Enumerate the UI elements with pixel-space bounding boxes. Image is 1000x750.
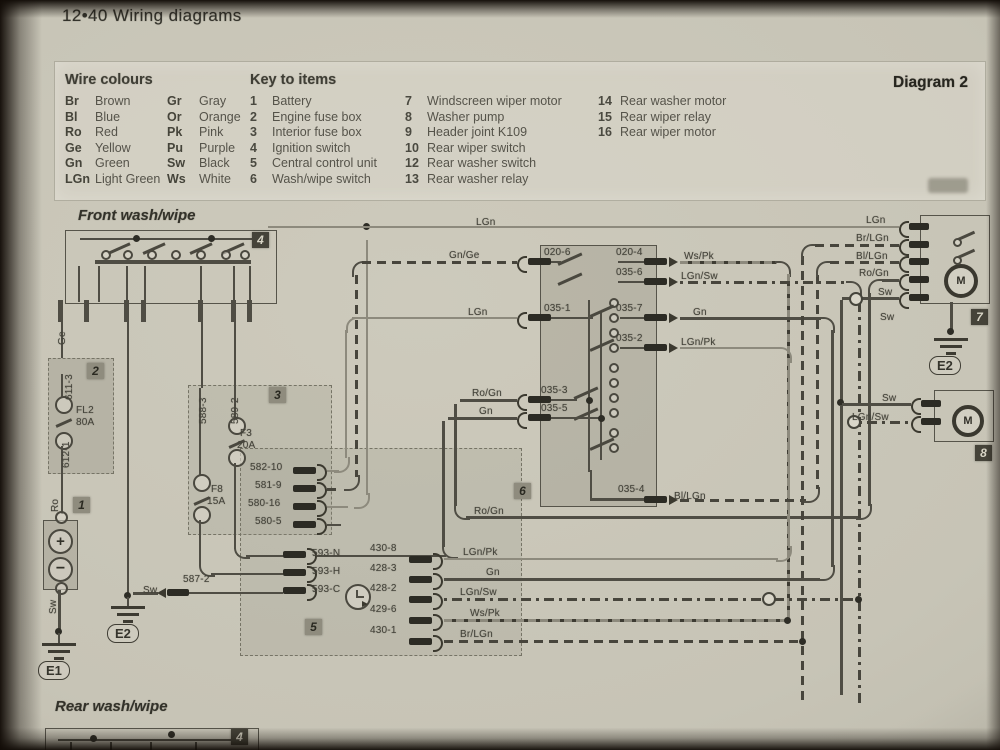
wire-label: 15A <box>207 496 225 507</box>
ground-symbol <box>117 613 139 616</box>
key-item-number: 10 <box>405 141 427 155</box>
wire-label: LGn/Pk <box>463 547 498 558</box>
wire-label: LGn/Pk <box>681 337 716 348</box>
key-item-number: 7 <box>405 94 427 108</box>
wire-segment <box>366 240 368 495</box>
rear-diagram-title: Rear wash/wipe <box>55 698 168 715</box>
connector-035-1 <box>528 314 551 321</box>
wire-gn-ge <box>362 261 517 264</box>
wire-row-lgn-pk <box>444 558 778 560</box>
ground-stem <box>127 597 129 606</box>
header-joint-marker <box>849 292 863 306</box>
wire-label: 430-8 <box>370 543 397 554</box>
wire-label: 588-3 <box>198 397 209 424</box>
junction-dot <box>208 235 215 242</box>
contact-circle <box>609 378 619 388</box>
junction-dot <box>855 596 862 603</box>
connector-430-1 <box>409 638 432 645</box>
connector-020-6 <box>528 258 551 265</box>
contact-circle <box>101 250 111 260</box>
wire-lgn-sw-v <box>858 294 861 706</box>
wire-segment <box>195 742 197 750</box>
wire-colour-code: Pk <box>167 125 199 141</box>
wire-label: 612-1 <box>61 441 72 468</box>
connector-pump <box>921 418 941 425</box>
wire-segment <box>80 238 262 240</box>
wire-label: LGn/Sw <box>460 587 497 598</box>
wire-label: F3 <box>240 428 252 439</box>
wire-segment <box>442 421 445 547</box>
wire-label: 589-2 <box>230 397 241 424</box>
wire-label: Sw <box>48 600 59 614</box>
terminal-stub <box>84 300 89 322</box>
wire-label: 587-2 <box>183 574 210 585</box>
wire-label: 430-1 <box>370 625 397 636</box>
key-item-label: Washer pump <box>427 110 504 124</box>
wire-label: 580-5 <box>255 516 282 527</box>
wire-corner <box>346 317 362 333</box>
wire-label: 429-6 <box>370 604 397 615</box>
ignition-switch-box <box>65 230 277 304</box>
key-item: 1Battery <box>250 94 405 110</box>
wire-row-lgn-sw <box>444 598 859 601</box>
connector-582-10 <box>293 467 316 474</box>
key-item-number: 15 <box>598 110 620 124</box>
wire-label: Sw <box>882 393 896 404</box>
wire-sw-v <box>840 300 843 400</box>
wire-lgn-pk-v <box>788 360 790 548</box>
wire-label: Br/LGn <box>460 629 493 640</box>
wire-colour-code: LGn <box>65 172 95 188</box>
wire-colour-name: Brown <box>95 94 167 110</box>
key-item: 8Washer pump <box>405 110 598 126</box>
wire-colour-code: Bl <box>65 110 95 126</box>
ground-symbol <box>111 606 145 609</box>
wire-label: Bl/LGn <box>856 251 888 262</box>
wire-label: LGn <box>866 215 886 226</box>
key-to-items-list: 1Battery2Engine fuse box3Interior fuse b… <box>250 94 726 187</box>
wire-label: 020-6 <box>544 247 571 258</box>
wire-label: LGn/Sw <box>681 271 718 282</box>
wire-row-br-lgn <box>444 640 803 643</box>
ground-symbol <box>54 657 64 660</box>
contact-circle <box>609 428 619 438</box>
manual-page-photo: 12•40 Wiring diagrams Wire colours BrBro… <box>0 0 1000 750</box>
wire-ro-gn-in <box>460 399 517 402</box>
wire-label: 20A <box>237 440 255 451</box>
wire-label: 035-7 <box>616 303 643 314</box>
wire-segment <box>61 374 63 398</box>
terminal-stub <box>141 300 146 322</box>
wire-segment <box>70 742 72 750</box>
wire-segment <box>551 261 561 263</box>
wire-label: Br/LGn <box>856 233 889 244</box>
wire-segment <box>95 260 251 264</box>
connector-593-N <box>283 551 306 558</box>
wire-segment <box>200 266 202 302</box>
wire-segment <box>150 742 152 750</box>
wire-colour-code: Ge <box>65 141 95 157</box>
wire-segment <box>234 463 236 549</box>
wire-label: Gn <box>486 567 500 578</box>
wire-segment <box>355 275 358 477</box>
component-tag: 4 <box>252 232 269 248</box>
wire-label: 035-1 <box>544 303 571 314</box>
diagram-number: Diagram 2 <box>893 74 968 92</box>
key-item-number: 1 <box>250 94 272 108</box>
clock-hand <box>357 596 364 598</box>
key-items-column: 14Rear washer motor15Rear wiper relay16R… <box>598 94 726 187</box>
connector-428-2 <box>409 596 432 603</box>
wire-ro-gn-v <box>868 293 871 506</box>
wire-colour-name: Blue <box>95 110 167 126</box>
wire-segment <box>98 266 100 302</box>
contact-circle <box>147 250 157 260</box>
wire-label: 428-3 <box>370 563 397 574</box>
wire-sw-pump <box>842 403 911 406</box>
terminal-stub <box>198 300 203 322</box>
key-item: 7Windscreen wiper motor <box>405 94 598 110</box>
wire-segment <box>327 488 338 491</box>
ground-label: E2 <box>107 624 139 643</box>
connector-motor <box>909 223 929 230</box>
wire-sw-down <box>840 405 843 695</box>
junction-dot <box>586 397 593 404</box>
legend-panel: Wire colours BrBrownGrGrayBlBlueOrOrange… <box>55 62 985 200</box>
wire-colour-code: Ws <box>167 172 199 188</box>
connector-arrow <box>669 277 678 287</box>
wire-segment <box>201 322 203 388</box>
junction-dot <box>90 735 97 742</box>
wire-label: Sw <box>878 287 892 298</box>
key-item-number: 12 <box>405 156 427 170</box>
ground-symbol <box>934 338 968 341</box>
key-item-label: Header joint K109 <box>427 125 527 139</box>
connector-580-5 <box>293 521 316 528</box>
clock-arrow <box>362 601 368 607</box>
component-tag: 6 <box>514 483 531 499</box>
contact-circle <box>609 408 619 418</box>
key-item-label: Central control unit <box>272 156 377 170</box>
contact-circle <box>609 343 619 353</box>
wire-segment <box>61 472 63 514</box>
wire-label: 035-5 <box>541 403 568 414</box>
wire-colour-name: Light Green <box>95 172 167 188</box>
wire-segment <box>345 330 347 458</box>
junction-dot <box>168 731 175 738</box>
key-items-column: 7Windscreen wiper motor8Washer pump9Head… <box>405 94 598 187</box>
wire-segment <box>551 317 593 319</box>
wire-label: 593-H <box>312 566 340 577</box>
connector-cup <box>911 398 921 415</box>
ground-stem <box>58 633 60 643</box>
wire-gn-in <box>448 417 517 420</box>
connector-cup <box>517 412 527 429</box>
wire-label: Ro/Gn <box>472 388 502 399</box>
wire-label: 580-16 <box>248 498 280 509</box>
key-item-label: Rear wiper relay <box>620 110 711 124</box>
wire-label: 593-N <box>312 548 340 559</box>
ground-symbol <box>123 620 133 623</box>
wire-segment <box>551 417 603 419</box>
connector-cup <box>899 256 909 273</box>
key-item-label: Rear washer relay <box>427 172 528 186</box>
wire-segment <box>590 470 592 498</box>
wire-label: 428-2 <box>370 583 397 594</box>
wire-label: 020-4 <box>616 247 643 258</box>
component-tag: 3 <box>269 387 286 403</box>
connector-428-3 <box>409 576 432 583</box>
fuse-terminal <box>193 474 211 492</box>
wire-colour-name: Yellow <box>95 141 167 157</box>
key-item-label: Wash/wipe switch <box>272 172 371 186</box>
wire-lgn-top <box>268 226 899 228</box>
contact-circle <box>196 250 206 260</box>
wire-segment <box>110 742 112 750</box>
ground-symbol <box>42 643 76 646</box>
front-diagram-title: Front wash/wipe <box>78 207 196 224</box>
key-item: 13Rear washer relay <box>405 172 598 188</box>
key-item-label: Engine fuse box <box>272 110 362 124</box>
wire-label: 035-3 <box>541 385 568 396</box>
connector-cup <box>517 312 527 329</box>
ground-label: E1 <box>38 661 70 680</box>
wire-label: 035-6 <box>616 267 643 278</box>
connector-035-7 <box>644 314 667 321</box>
wire-row-gn <box>444 578 820 581</box>
wire-corner <box>804 487 820 503</box>
key-item-number: 3 <box>250 125 272 139</box>
key-item: 14Rear washer motor <box>598 94 726 110</box>
connector-arrow <box>669 257 678 267</box>
contact-circle <box>240 250 250 260</box>
connector-cup <box>899 221 909 238</box>
connector-587-2 <box>167 589 189 596</box>
wire-gn-v <box>831 330 834 567</box>
wire-label: LGn <box>468 307 488 318</box>
key-items-column: 1Battery2Engine fuse box3Interior fuse b… <box>250 94 405 187</box>
key-item-number: 9 <box>405 125 427 139</box>
key-item-label: Windscreen wiper motor <box>427 94 562 108</box>
key-item-label: Rear wiper motor <box>620 125 716 139</box>
key-item-label: Interior fuse box <box>272 125 362 139</box>
wire-colours-title: Wire colours <box>65 72 153 88</box>
battery-plus: + <box>48 529 73 554</box>
terminal-stub <box>231 300 236 322</box>
ground-symbol <box>946 352 956 355</box>
wire-segment <box>620 317 644 319</box>
component-tag: 4 <box>231 729 248 745</box>
wire-corner <box>776 546 792 562</box>
wire-label: Gn/Ge <box>449 250 479 261</box>
wire-label: Ws/Pk <box>470 608 500 619</box>
key-item: 2Engine fuse box <box>250 110 405 126</box>
component-tag: 7 <box>971 309 988 325</box>
page-header: 12•40 Wiring diagrams <box>62 6 242 26</box>
connector-arrow <box>157 588 166 598</box>
wire-segment <box>327 524 341 526</box>
key-item-label: Rear wiper switch <box>427 141 526 155</box>
wire-label: 582-10 <box>250 462 282 473</box>
connector-motor <box>909 294 929 301</box>
connector-cup <box>517 256 527 273</box>
connector-pump <box>921 400 941 407</box>
wire-segment <box>144 266 146 302</box>
wire-label: 593-C <box>312 584 340 595</box>
contact-circle <box>171 250 181 260</box>
connector-cup <box>899 239 909 256</box>
wire-lgn-mid <box>352 317 517 319</box>
connector-cup <box>517 394 527 411</box>
connector-motor <box>909 241 929 248</box>
key-item: 6Wash/wipe switch <box>250 172 405 188</box>
ground-symbol <box>48 650 70 653</box>
key-item-number: 16 <box>598 125 620 139</box>
component-tag: 2 <box>87 363 104 379</box>
connector-580-16 <box>293 503 316 510</box>
junction-dot <box>799 638 806 645</box>
key-item-number: 2 <box>250 110 272 124</box>
wire-label: Sw <box>880 312 894 323</box>
wire-colour-code: Gn <box>65 156 95 172</box>
contact-circle <box>609 443 619 453</box>
motor-icon: M <box>952 405 984 437</box>
wire-label: Bl/LGn <box>674 491 706 502</box>
wire-label: Sw <box>143 585 157 596</box>
paper-page: 12•40 Wiring diagrams Wire colours BrBro… <box>0 0 1000 750</box>
wire-segment <box>618 261 644 263</box>
ground-symbol <box>940 345 962 348</box>
header-joint-marker <box>762 592 776 606</box>
wire-colour-name: Red <box>95 125 167 141</box>
junction-dot <box>784 617 791 624</box>
component-tag: 8 <box>975 445 992 461</box>
wire-br-lgn-motor <box>815 244 899 247</box>
connector-035-5 <box>528 414 551 421</box>
print-code-smudge <box>928 178 968 193</box>
wire-label: Ro/Gn <box>859 268 889 279</box>
connector-cup <box>899 292 909 309</box>
connector-motor <box>909 276 929 283</box>
connector-430-8 <box>409 556 432 563</box>
wire-colour-code: Gr <box>167 94 199 110</box>
switch-ladder <box>600 312 602 460</box>
wire-colour-code: Ro <box>65 125 95 141</box>
contact-circle <box>123 250 133 260</box>
fuse-terminal <box>193 506 211 524</box>
wire-colours-list: BrBrownGrGrayBlBlueOrOrangeRoRedPkPinkGe… <box>65 94 279 187</box>
wire-label: Ro/Gn <box>474 506 504 517</box>
wire-segment <box>327 506 348 508</box>
wire-corner <box>819 565 835 581</box>
wire-colour-code: Sw <box>167 156 199 172</box>
key-item: 4Ignition switch <box>250 141 405 157</box>
wire-label: FL2 <box>76 405 94 416</box>
contact-circle <box>953 256 962 265</box>
connector-020-4 <box>644 258 667 265</box>
wire-label: Gn <box>479 406 493 417</box>
wire-label: 611-3 <box>64 374 75 400</box>
junction-dot <box>133 235 140 242</box>
wire-segment <box>551 399 577 401</box>
contact-circle <box>953 238 962 247</box>
contact-circle <box>609 313 619 323</box>
connector-035-2 <box>644 344 667 351</box>
wire-segment <box>590 498 644 501</box>
wire-segment <box>246 555 283 557</box>
wire-colour-code: Or <box>167 110 199 126</box>
wire-label: F8 <box>211 484 223 495</box>
engine-fuse-box <box>48 358 114 474</box>
wire-label: LGn/Sw <box>852 412 889 423</box>
wire-segment <box>234 322 236 388</box>
contact-circle <box>221 250 231 260</box>
connector-035-3 <box>528 396 551 403</box>
terminal-stub <box>58 300 63 322</box>
component-tag: 5 <box>305 619 322 635</box>
wire-ro-gn-motor <box>882 279 899 282</box>
wire-label: LGn <box>476 217 496 228</box>
terminal-stub <box>247 300 252 322</box>
wire-segment <box>58 739 245 741</box>
wire-corner <box>856 504 872 520</box>
key-item-label: Battery <box>272 94 312 108</box>
contact-circle <box>609 363 619 373</box>
wire-segment <box>211 573 283 575</box>
key-to-items-title: Key to items <box>250 72 336 88</box>
connector-593-H <box>283 569 306 576</box>
key-item: 16Rear wiper motor <box>598 125 726 141</box>
wire-colour-code: Pu <box>167 141 199 157</box>
contact-circle <box>609 393 619 403</box>
wire-label: 80A <box>76 417 94 428</box>
wire-segment <box>78 266 80 302</box>
fuse-terminal <box>228 449 246 467</box>
wire-segment <box>233 266 235 302</box>
wire-colour-code: Br <box>65 94 95 110</box>
key-item-label: Rear washer switch <box>427 156 536 170</box>
key-item-number: 14 <box>598 94 620 108</box>
key-item: 5Central control unit <box>250 156 405 172</box>
wire-label: 035-4 <box>618 484 645 495</box>
connector-593-C <box>283 587 306 594</box>
wire-label: 035-2 <box>616 333 643 344</box>
connector-035-4 <box>644 496 667 503</box>
connector-arrow <box>669 343 678 353</box>
connector-cup <box>899 274 909 291</box>
wire-label: Ws/Pk <box>684 251 714 262</box>
wire-row-ws-pk <box>444 619 788 622</box>
key-item: 9Header joint K109 <box>405 125 598 141</box>
connector-motor <box>909 258 929 265</box>
wire-segment <box>249 266 251 302</box>
wire-label: Gn <box>693 307 707 318</box>
wire-segment <box>126 266 128 302</box>
key-item-label: Rear washer motor <box>620 94 726 108</box>
battery-terminal <box>55 582 68 595</box>
wire-bl-lgn-v <box>816 275 819 489</box>
wire-segment <box>620 347 644 349</box>
connector-581-9 <box>293 485 316 492</box>
component-tag: 1 <box>73 497 90 513</box>
key-item-label: Ignition switch <box>272 141 351 155</box>
wire-segment <box>199 520 201 563</box>
wire-segment <box>189 592 283 594</box>
connector-cup <box>911 416 921 433</box>
wire-ro-gn-long <box>466 516 858 519</box>
key-item: 12Rear washer switch <box>405 156 598 172</box>
battery-minus: − <box>48 557 73 582</box>
